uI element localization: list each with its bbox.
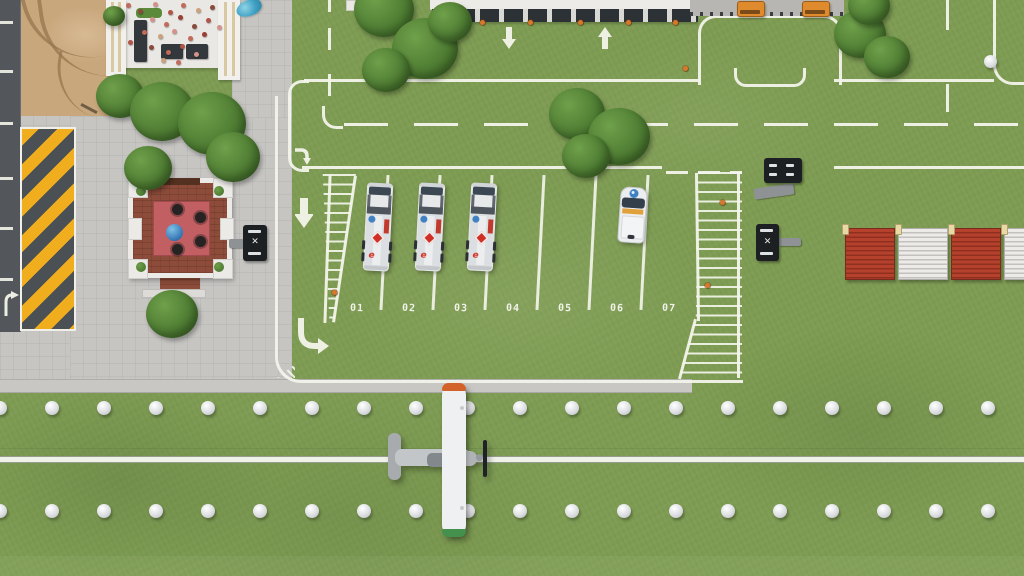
- runway-edge-light: [773, 504, 787, 518]
- aircraft-fuel-cap: [460, 406, 464, 410]
- runway-edge-light: [877, 401, 891, 415]
- runway-edge-light: [513, 401, 527, 415]
- runway-edge-light: [981, 504, 995, 518]
- apron-road-line: [834, 79, 994, 82]
- road-line-corner: [993, 0, 1024, 85]
- truck-cab-rail: [367, 194, 371, 206]
- safety-cone: [626, 20, 631, 25]
- parking-spot-label: 05: [554, 302, 577, 314]
- pedestrian: [180, 44, 185, 49]
- table: [172, 244, 183, 255]
- runway-edge-light: [201, 504, 215, 518]
- road-turn-arrow: [1, 290, 20, 318]
- truck-windshield: [473, 186, 495, 195]
- truck-cab-rail: [492, 196, 496, 208]
- tree: [362, 48, 410, 92]
- truck-wheel: [362, 240, 365, 249]
- small-aircraft[interactable]: [385, 380, 497, 540]
- pavilion-path: [160, 276, 200, 290]
- taxiway-light: [984, 55, 997, 68]
- pedestrian: [153, 2, 158, 7]
- runway-edge-light: [565, 504, 579, 518]
- pedestrian: [196, 8, 201, 13]
- gazebo-pavilion[interactable]: [128, 178, 232, 278]
- depot-stub-line: [734, 68, 806, 87]
- parking-spot-label: 02: [398, 302, 421, 314]
- road-lane-dash: [0, 278, 13, 281]
- barrier-fence-white[interactable]: [1004, 228, 1024, 280]
- baggage-cart[interactable]: [737, 1, 765, 17]
- curved-arrow-marking: [294, 318, 330, 356]
- chevron-safety-pad: [20, 127, 76, 331]
- runway-edge-light: [721, 401, 735, 415]
- parking-spot-label: 04: [502, 302, 525, 314]
- truck-brand-letter: e: [472, 251, 485, 264]
- runway-edge-light: [617, 504, 631, 518]
- runway-edge-light: [773, 401, 787, 415]
- truck-wheel: [466, 240, 469, 249]
- safety-cone: [332, 290, 337, 295]
- plant: [214, 186, 224, 196]
- runway-edge-light: [877, 504, 891, 518]
- pedestrian: [178, 15, 183, 20]
- pedestrian: [164, 22, 169, 27]
- parking-spot-label: 06: [606, 302, 629, 314]
- lane-dash: [328, 0, 331, 12]
- road-lane-dash: [0, 122, 13, 125]
- aircraft-propeller: [483, 440, 487, 477]
- runway-edge-light: [825, 504, 839, 518]
- truck-windshield: [421, 186, 443, 195]
- road-lane-dash: [0, 227, 13, 230]
- truck-wheel: [465, 252, 468, 261]
- parking-lot-top-line: [302, 166, 662, 169]
- ground-power-unit[interactable]: ✕: [756, 224, 779, 261]
- baggage-cart[interactable]: [802, 1, 830, 17]
- pedestrian: [168, 10, 173, 15]
- runway-edge-light: [357, 504, 371, 518]
- lane-dash: [946, 0, 949, 30]
- runway-edge-light: [97, 504, 111, 518]
- fuel-truck[interactable]: e: [363, 182, 394, 271]
- truck-cab-rail: [440, 196, 444, 208]
- aircraft-fuel-cap: [460, 506, 464, 510]
- parking-spot-label: 01: [346, 302, 369, 314]
- up-arrow-marking: [598, 27, 612, 49]
- road-lane-dash: [0, 70, 13, 73]
- pavilion-pillar: [128, 218, 142, 240]
- turn-arrow-marking: [294, 146, 316, 166]
- truck-wheel: [389, 242, 392, 251]
- runway-edge-light: [721, 504, 735, 518]
- pedestrian: [126, 3, 131, 8]
- plant: [136, 262, 146, 272]
- equipment-arm: [229, 239, 244, 248]
- tree: [562, 134, 610, 178]
- safety-cone: [528, 20, 533, 25]
- runway-edge-light: [929, 504, 943, 518]
- aircraft-wingtip-right: [442, 529, 466, 537]
- truck-wheel: [413, 252, 416, 261]
- parking-spot-label: 07: [658, 302, 681, 314]
- globe-ornament: [166, 224, 183, 241]
- runway-edge-light: [565, 401, 579, 415]
- tree: [124, 146, 172, 190]
- ground-power-unit[interactable]: ✕: [243, 225, 267, 261]
- tree: [864, 36, 910, 78]
- van-rear-detail: [627, 235, 634, 239]
- truck-wheel: [440, 254, 443, 263]
- pedestrian: [158, 34, 163, 39]
- pedestrian: [176, 60, 181, 65]
- truck-red-placard: [436, 219, 442, 233]
- game-viewport[interactable]: ✕ ✕ 01020304050607: [0, 0, 1024, 576]
- runway-edge-light: [253, 504, 267, 518]
- runway-edge-light: [149, 401, 163, 415]
- taxiway-centerline: [0, 456, 1024, 463]
- bench: [134, 20, 147, 62]
- truck-wheel: [441, 242, 444, 251]
- runway-edge-light: [669, 504, 683, 518]
- aircraft-spinner: [476, 454, 483, 461]
- service-road: [0, 0, 21, 332]
- runway-edge-light: [0, 504, 7, 518]
- pedestrian: [210, 5, 215, 10]
- runway-edge-light: [201, 401, 215, 415]
- table: [172, 204, 183, 215]
- truck-cab-rail: [419, 194, 423, 206]
- pedestrian: [149, 45, 154, 50]
- truck-cab-rail: [471, 194, 475, 206]
- down-arrow-marking: [295, 198, 313, 228]
- runway-edge-light: [617, 401, 631, 415]
- down-arrow-marking: [502, 27, 516, 49]
- pedestrian: [142, 30, 147, 35]
- runway-edge-light: [981, 401, 995, 415]
- runway-edge-light: [253, 401, 267, 415]
- pedestrian: [161, 58, 166, 63]
- pedestrian: [172, 29, 177, 34]
- service-van[interactable]: [617, 186, 648, 244]
- truck-wheel: [414, 240, 417, 249]
- truck-brand-letter: e: [368, 251, 381, 264]
- fence-post: [895, 224, 902, 235]
- runway-edge-light: [45, 504, 59, 518]
- road-lane-dash: [0, 177, 13, 180]
- tree: [428, 2, 472, 42]
- fence-post: [948, 224, 955, 235]
- fence-post: [1001, 224, 1008, 235]
- road-lane-dash: [0, 21, 13, 24]
- grass-seam: [0, 448, 1024, 449]
- truck-wheel: [493, 242, 496, 251]
- table: [195, 236, 206, 247]
- truck-windshield: [369, 186, 391, 195]
- safety-cone: [673, 20, 678, 25]
- plant: [214, 262, 224, 272]
- fuel-truck[interactable]: e: [415, 182, 446, 271]
- lane-dash: [946, 84, 949, 112]
- truck-wheel: [361, 252, 364, 261]
- truck-red-placard: [488, 219, 494, 233]
- tree: [146, 290, 198, 338]
- runway-edge-light: [45, 401, 59, 415]
- parking-spot-label: 03: [450, 302, 473, 314]
- fuel-truck[interactable]: e: [467, 182, 498, 271]
- runway-edge-light: [149, 504, 163, 518]
- grass-light-band: [0, 556, 1024, 576]
- pedestrian: [188, 36, 193, 41]
- aircraft-wingtip-left: [442, 383, 466, 391]
- pedestrian: [206, 18, 211, 23]
- barrier-fence-white[interactable]: [898, 228, 948, 280]
- truck-brand-letter: e: [420, 251, 433, 264]
- lane-dash: [328, 28, 331, 50]
- runway-edge-light: [97, 401, 111, 415]
- safety-cone: [720, 200, 725, 205]
- equipment-arm: [779, 238, 801, 246]
- pedestrian: [150, 17, 155, 22]
- equipment-arm: [753, 183, 794, 199]
- pedestrian: [192, 24, 197, 29]
- ground-equipment[interactable]: [764, 158, 802, 183]
- runway-edge-light: [0, 401, 7, 415]
- lane-dash: [328, 74, 331, 96]
- pedestrian: [194, 52, 199, 57]
- fence-post: [842, 224, 849, 235]
- pedestrian: [128, 40, 133, 45]
- terminal-plaza[interactable]: [106, 0, 240, 80]
- pedestrian: [181, 3, 186, 8]
- truck-wheel: [492, 254, 495, 263]
- truck-cab-rail: [388, 196, 392, 208]
- runway-edge-light: [669, 401, 683, 415]
- safety-cone: [480, 20, 485, 25]
- truck-red-placard: [384, 219, 390, 233]
- pedestrian: [138, 9, 143, 14]
- runway-edge-light: [825, 401, 839, 415]
- tree: [206, 132, 260, 182]
- tree: [103, 6, 125, 26]
- runway-edge-light: [513, 504, 527, 518]
- pedestrian: [166, 50, 171, 55]
- table: [195, 212, 206, 223]
- runway-edge-light: [929, 401, 943, 415]
- safety-cone: [578, 20, 583, 25]
- runway-edge-light: [305, 401, 319, 415]
- runway-edge-light: [305, 504, 319, 518]
- van-windshield: [622, 197, 646, 209]
- pavement-area: [0, 330, 72, 382]
- safety-cone: [683, 66, 688, 71]
- barrier-fence-red[interactable]: [951, 228, 1001, 280]
- pedestrian: [217, 25, 222, 30]
- pedestrian: [202, 32, 207, 37]
- runway-edge-light: [357, 401, 371, 415]
- truck-wheel: [388, 254, 391, 263]
- barrier-fence-red[interactable]: [845, 228, 895, 280]
- apron-boundary-line: [834, 166, 1024, 169]
- safety-cone: [705, 283, 710, 288]
- pavilion-pillar: [220, 218, 234, 240]
